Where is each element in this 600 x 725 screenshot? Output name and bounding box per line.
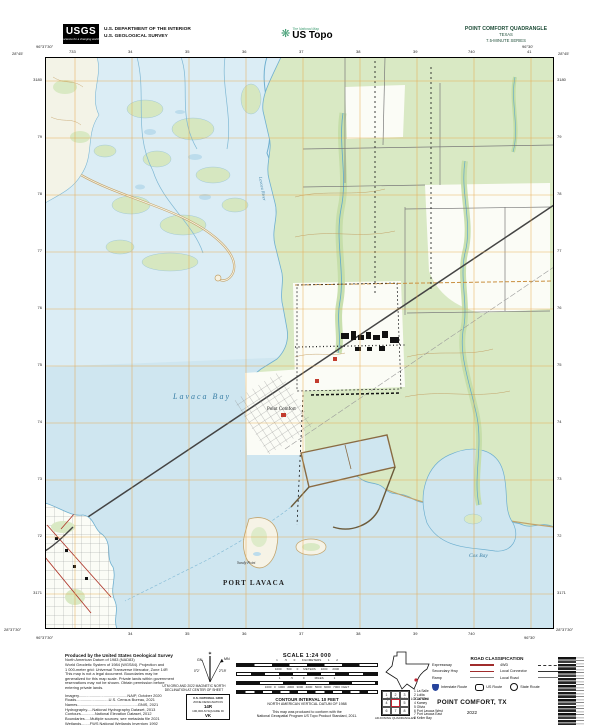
us-route-legend: US Route	[475, 684, 502, 692]
us-route-shield-icon	[475, 684, 484, 692]
point-comfort-red-building	[281, 413, 286, 417]
road-class-4wd: 4WD	[500, 663, 562, 667]
map-label-cox-bay: Cox Bay	[469, 553, 488, 559]
small-island	[296, 539, 326, 555]
declination-caption-line: DECLINATION AT CENTER OF SHEET	[150, 689, 238, 693]
grid-tick-label: 74	[557, 420, 561, 424]
grid-tick-label: 75	[22, 363, 42, 367]
grid-tick-label: 34	[128, 632, 132, 636]
adjoining-cell: 5	[400, 699, 409, 707]
grid-tick-label: 39	[413, 50, 417, 54]
data-sources-list: Imagery.................................…	[65, 694, 183, 725]
interstate-shield-icon	[432, 684, 439, 691]
barcode	[558, 657, 584, 725]
usgs-tagline: science for a changing world	[63, 37, 98, 41]
declination-caption: UTM GRID AND 2022 MAGNETIC NORTH DECLINA…	[150, 685, 238, 693]
dept-line-2: U.S. GEOLOGICAL SURVEY	[104, 34, 191, 41]
map-label-port-lavaca: PORT LAVACA	[223, 579, 285, 587]
ustopo-leaf-icon: ❋	[281, 29, 290, 40]
corner-coordinate: 96°30'	[522, 45, 533, 49]
north-star-icon: ✶	[208, 651, 212, 657]
adjoining-cell: 2	[391, 691, 400, 699]
grid-tick-label: 41	[527, 50, 531, 54]
adjoining-cell: 3	[400, 691, 409, 699]
grid-tick-label: 78	[22, 192, 42, 196]
road-class-label: Ramp	[432, 676, 442, 680]
corner-coordinate: 96°37'30"	[36, 636, 53, 640]
road-class-local-connector: Local Connector	[500, 669, 562, 673]
quadrangle-title: POINT COMFORT QUADRANGLE TEXAS 7.5-MINUT…	[446, 26, 566, 43]
conformance-line: National Geospatial Program US Topo Prod…	[233, 714, 381, 718]
grid-tick-label: 73	[22, 477, 42, 481]
svg-text:MN: MN	[224, 657, 230, 661]
grid-tick-label: 77	[22, 249, 42, 253]
grid-tick-label: 35	[185, 632, 189, 636]
grid-tick-label: 38	[356, 50, 360, 54]
shield-label: US Route	[486, 685, 502, 689]
grid-tick-label: 37	[299, 632, 303, 636]
grid-tick-label: 37	[299, 50, 303, 54]
grid-tick-label: 35	[185, 50, 189, 54]
standard-conformance-note: This map was produced to conform with th…	[233, 710, 381, 719]
grid-tick-label: 34	[128, 50, 132, 54]
ramp-line-sample	[470, 677, 494, 678]
usng-square: VK	[187, 713, 229, 718]
scale-bar-feet	[236, 690, 378, 694]
department-lines: U.S. DEPARTMENT OF THE INTERIOR U.S. GEO…	[104, 27, 191, 40]
grid-tick-label: 740	[468, 632, 475, 636]
grid-tick-label: 73	[557, 477, 561, 481]
quad-series: 7.5-MINUTE SERIES	[446, 38, 566, 44]
state-route-legend: State Route	[510, 683, 539, 691]
map-label-sandy-point: Sandy Point	[237, 561, 256, 565]
corner-coordinate: 28°45'	[12, 52, 23, 56]
corner-coordinate: 28°37'30"	[4, 628, 21, 632]
texas-outline	[383, 651, 431, 691]
road-class-label: Secondary Hwy	[432, 669, 458, 673]
sheet-year: 2022	[412, 710, 532, 715]
grid-tick-label: 78	[557, 192, 561, 196]
map-label-lavaca-bay: Lavaca Bay	[172, 392, 231, 401]
scale-block: SCALE 1:24 000 1 .5 0 KILOMETERS 1 2 100…	[233, 653, 381, 719]
grid-tick-label: 3171	[557, 591, 566, 595]
sheet-title: POINT COMFORT, TX	[412, 699, 532, 706]
adjoining-cell: 7	[391, 707, 400, 715]
map-label-point-comfort: Point Comfort	[267, 407, 296, 412]
grid-tick-label: 72	[22, 534, 42, 538]
ustopo-wordmark-block: The National Map US Topo	[292, 27, 332, 41]
grid-tick-label: 39	[413, 632, 417, 636]
road-classification: ROAD CLASSIFICATION Expressway Secondary…	[432, 656, 562, 691]
road-class-ramp: Ramp	[432, 676, 494, 680]
grid-tick-label: 733	[69, 50, 76, 54]
usgs-logo: USGS science for a changing world	[63, 24, 99, 44]
adjoining-cell: 1	[382, 691, 391, 699]
expressway-line-sample	[470, 664, 494, 666]
grid-tick-label: 77	[557, 249, 561, 253]
corner-coordinate: 96°30'	[524, 636, 535, 640]
grid-tick-label: 72	[557, 534, 561, 538]
adjoining-caption: ADJOINING QUADRANGLES	[367, 716, 423, 720]
dept-line-1: U.S. DEPARTMENT OF THE INTERIOR	[104, 27, 191, 34]
road-class-expressway: Expressway	[432, 663, 494, 667]
vertical-datum-note: NORTH AMERICAN VERTICAL DATUM OF 1988	[233, 702, 381, 706]
shield-label: Interstate Route	[441, 685, 467, 689]
adjoining-quadrangles: 1 2 3 4 5 6 7 8 1 La Salle 2 Lolita 3 La…	[381, 690, 410, 716]
adjoining-cell-center	[391, 699, 400, 707]
usgs-topo-sheet: USGS science for a changing world U.S. D…	[0, 0, 600, 725]
grid-tick-label: 79	[557, 135, 561, 139]
adjoining-grid: 1 2 3 4 5 6 7 8	[381, 690, 410, 716]
adjoining-cell: 4	[382, 699, 391, 707]
grid-tick-label: 75	[557, 363, 561, 367]
road-class-label: Local Connector	[500, 669, 527, 673]
grid-tick-label: 74	[22, 420, 42, 424]
svg-text:GN: GN	[197, 658, 203, 662]
barcode-column	[576, 657, 584, 725]
road-classification-title: ROAD CLASSIFICATION	[432, 656, 562, 661]
grid-tick-label: 3180	[557, 78, 566, 82]
svg-text:2°19': 2°19'	[219, 669, 227, 673]
road-class-local-road: Local Road	[500, 676, 562, 680]
road-class-label: Local Road	[500, 676, 519, 680]
state-route-circle-icon	[510, 683, 518, 691]
grid-tick-label: 76	[22, 306, 42, 310]
road-class-secondary: Secondary Hwy	[432, 669, 494, 673]
grid-tick-label: 3171	[22, 591, 42, 595]
grid-tick-label: 36	[242, 50, 246, 54]
road-class-label: 4WD	[500, 663, 508, 667]
corner-coordinate: 96°37'30"	[36, 45, 53, 49]
secondary-line-sample	[470, 671, 494, 672]
shield-label: State Route	[520, 685, 539, 689]
quad-location-dot	[414, 678, 417, 681]
ustopo-wordmark: US Topo	[292, 31, 332, 41]
grid-tick-label: 38	[356, 632, 360, 636]
adjoining-cell: 8	[400, 707, 409, 715]
usgs-logo-text: USGS	[66, 27, 96, 37]
adjoining-cell: 6	[382, 707, 391, 715]
usng-box: U.S. NATIONAL GRID ZONE DESIGNATION 14R …	[186, 694, 230, 720]
topo-map-graphic: Lavaca Bay PORT LAVACA Sandy Point Point…	[45, 57, 554, 629]
grid-tick-label: 36	[242, 632, 246, 636]
grid-tick-label: 76	[557, 306, 561, 310]
road-class-label: Expressway	[432, 663, 452, 667]
svg-text:0°2': 0°2'	[194, 669, 200, 673]
corner-coordinate: 28°45'	[558, 52, 569, 56]
grid-tick-label: 3180	[22, 78, 42, 82]
corner-coordinate: 28°37'30"	[556, 628, 573, 632]
ustopo-logo: ❋ The National Map US Topo	[281, 27, 333, 41]
interstate-route-legend: Interstate Route	[432, 684, 467, 691]
map-area: Lavaca Bay PORT LAVACA Sandy Point Point…	[45, 57, 554, 629]
grid-tick-label: 79	[22, 135, 42, 139]
grid-tick-label: 740	[468, 50, 475, 54]
